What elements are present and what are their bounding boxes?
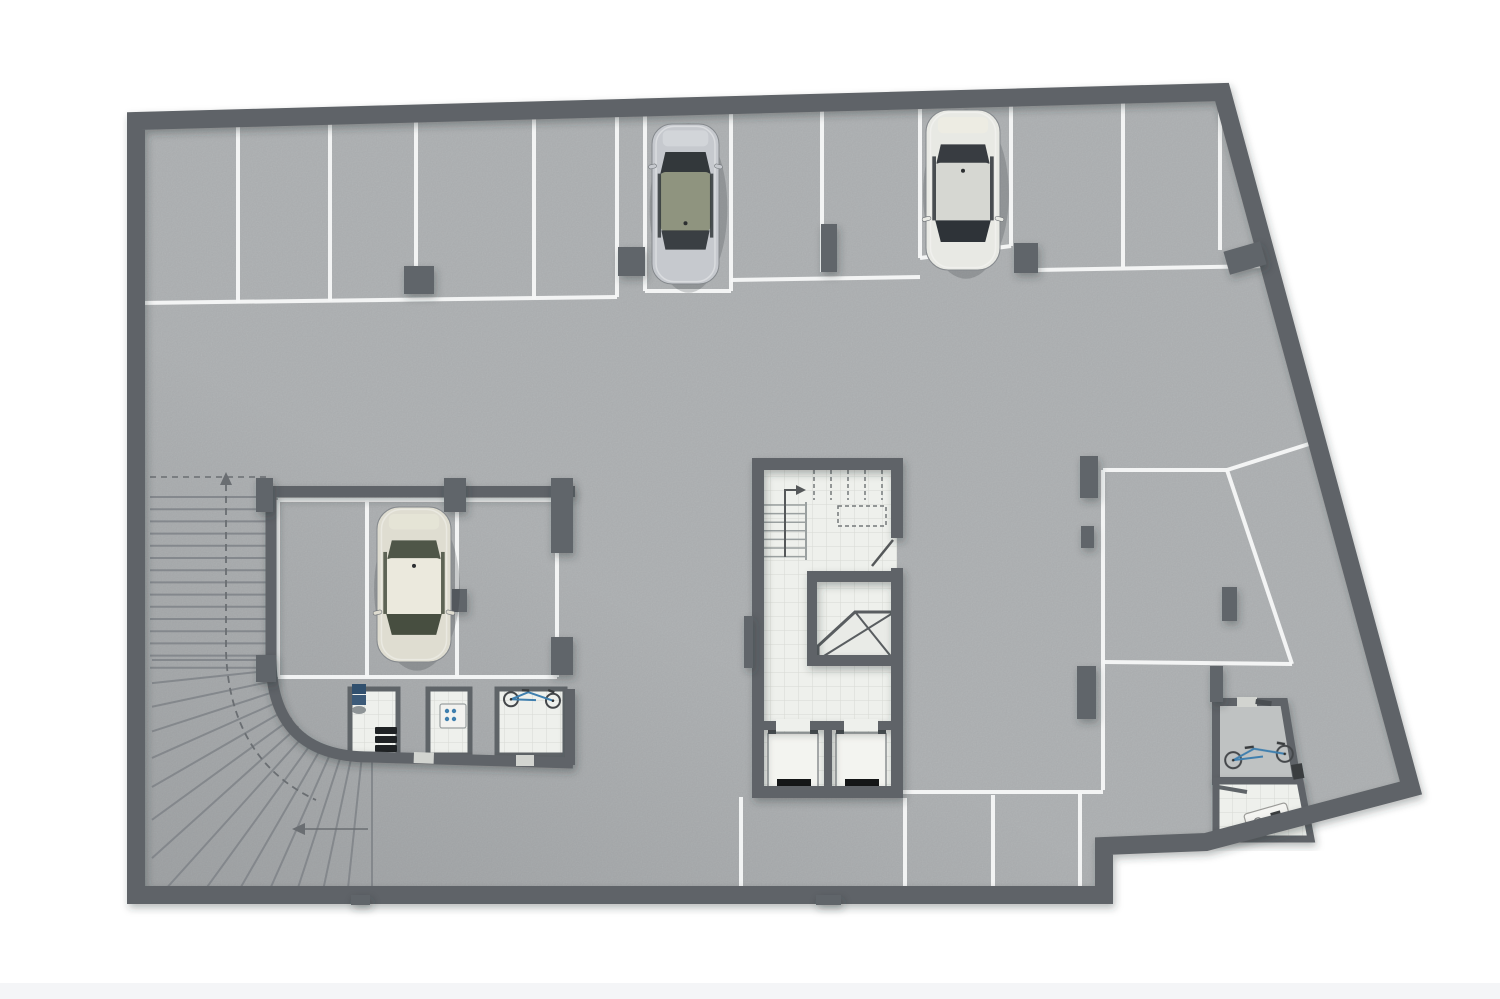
column [1222, 587, 1237, 621]
washer-appliance [440, 704, 466, 728]
floor-plan-page [0, 0, 1500, 999]
page-bottom-band [0, 983, 1500, 999]
elevator-right [836, 730, 886, 788]
elevator-door [845, 779, 879, 787]
car-white-sedan [922, 109, 1009, 279]
car-silver-hatchback [648, 123, 727, 293]
column [444, 478, 466, 512]
column [1080, 456, 1098, 498]
elevator-left [768, 730, 818, 788]
bike-seat [1245, 747, 1254, 748]
column [618, 247, 645, 276]
garage-box-wall [262, 486, 575, 497]
column [1210, 666, 1223, 702]
column [256, 655, 276, 682]
column [351, 895, 370, 905]
column [816, 895, 841, 905]
column [1014, 243, 1038, 273]
column [551, 637, 573, 675]
car-cream-suv [373, 506, 460, 670]
elevator-door [777, 779, 811, 787]
floor-plan-svg [0, 0, 1500, 999]
door-opening [1237, 697, 1257, 707]
column [404, 266, 434, 294]
bike-room [1216, 702, 1297, 781]
storage-room-3 [497, 689, 565, 755]
storage-end-wall [565, 689, 575, 765]
column [256, 478, 273, 512]
column [821, 224, 837, 272]
column [551, 478, 573, 553]
stall-line [1103, 662, 1292, 664]
column [1077, 666, 1096, 719]
column [1081, 526, 1094, 548]
column [744, 616, 753, 668]
